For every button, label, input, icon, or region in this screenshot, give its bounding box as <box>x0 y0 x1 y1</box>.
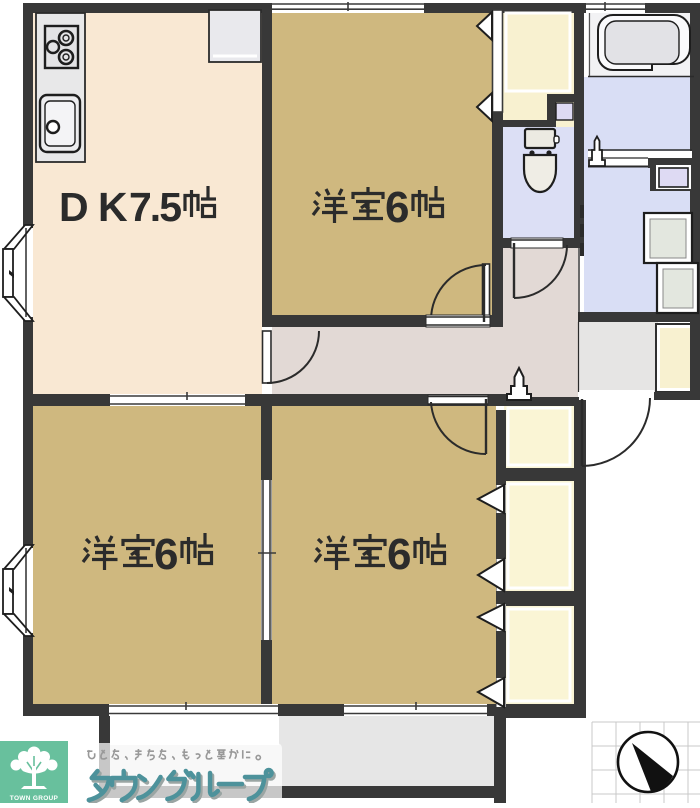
svg-text:6: 6 <box>387 530 411 579</box>
svg-text:TOWN GROUP: TOWN GROUP <box>10 795 59 802</box>
svg-text:6: 6 <box>385 183 409 232</box>
svg-text:D: D <box>59 184 89 230</box>
svg-text:K: K <box>98 184 128 230</box>
svg-text:6: 6 <box>154 530 178 579</box>
svg-text:7.5: 7.5 <box>129 184 181 230</box>
